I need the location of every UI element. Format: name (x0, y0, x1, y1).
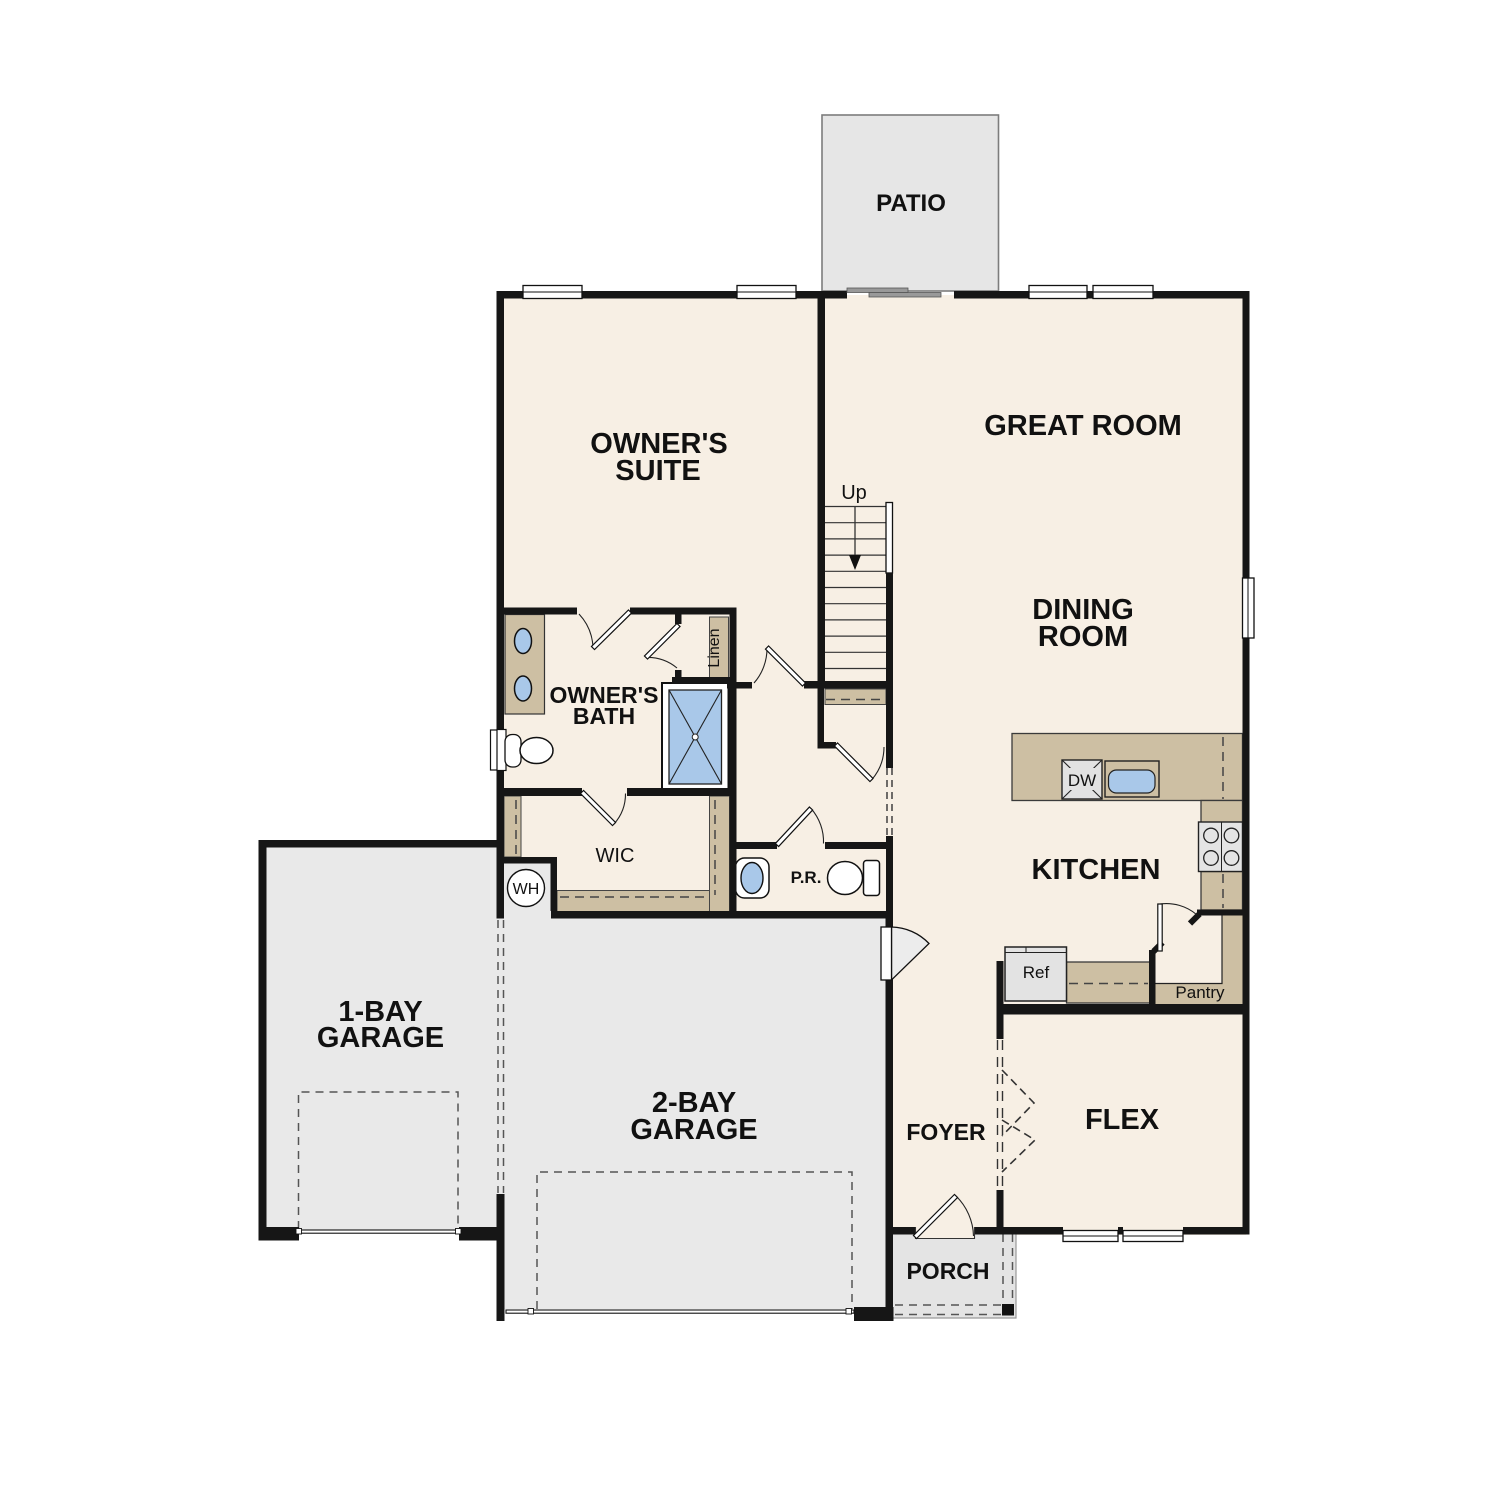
svg-text:Linen: Linen (706, 628, 723, 667)
svg-text:BATH: BATH (573, 703, 635, 729)
svg-text:Up: Up (841, 482, 867, 504)
svg-text:GARAGE: GARAGE (630, 1114, 757, 1146)
svg-text:Pantry: Pantry (1175, 983, 1225, 1002)
svg-text:ROOM: ROOM (1038, 621, 1128, 653)
svg-text:KITCHEN: KITCHEN (1032, 854, 1161, 886)
svg-text:WIC: WIC (596, 845, 635, 867)
svg-text:P.R.: P.R. (791, 868, 822, 887)
svg-text:Ref: Ref (1023, 963, 1050, 982)
svg-text:PORCH: PORCH (906, 1258, 989, 1284)
svg-text:FOYER: FOYER (906, 1119, 986, 1145)
svg-text:DW: DW (1068, 771, 1096, 790)
svg-text:GREAT ROOM: GREAT ROOM (984, 410, 1182, 442)
svg-text:SUITE: SUITE (615, 455, 700, 487)
svg-text:FLEX: FLEX (1085, 1104, 1160, 1136)
svg-text:WH: WH (513, 881, 540, 898)
svg-text:GARAGE: GARAGE (317, 1022, 444, 1054)
svg-text:PATIO: PATIO (876, 190, 946, 217)
